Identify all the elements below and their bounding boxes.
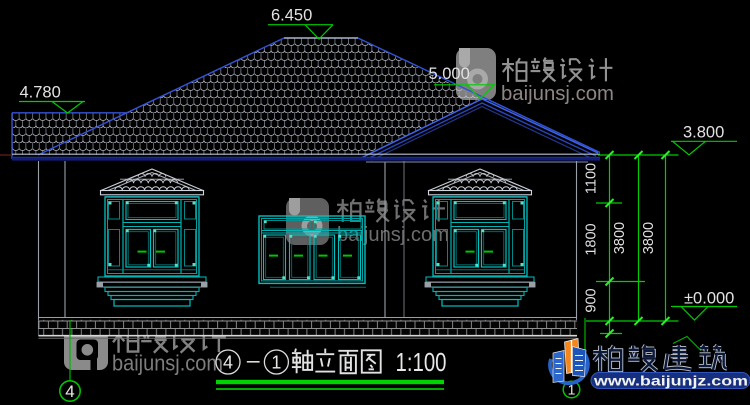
svg-text:1800: 1800 [584, 223, 600, 255]
svg-text:900: 900 [584, 288, 600, 312]
svg-text:4: 4 [65, 382, 74, 401]
svg-text:3800: 3800 [641, 222, 657, 254]
svg-text:±0.000: ±0.000 [684, 290, 734, 308]
svg-text:5.000: 5.000 [429, 65, 470, 83]
svg-text:1100: 1100 [584, 163, 600, 194]
svg-text:baijunsj.com: baijunsj.com [112, 351, 223, 376]
svg-text:1:100: 1:100 [396, 347, 447, 377]
svg-text:www.baijunjz.com: www.baijunjz.com [593, 373, 748, 389]
svg-text:1: 1 [271, 353, 281, 373]
svg-text:4: 4 [223, 353, 233, 373]
svg-text:3800: 3800 [612, 222, 628, 254]
svg-text:baijunsj.com: baijunsj.com [501, 83, 614, 105]
svg-text:6.450: 6.450 [271, 7, 312, 25]
svg-text:4.780: 4.780 [20, 84, 61, 102]
svg-text:3.800: 3.800 [683, 124, 724, 142]
